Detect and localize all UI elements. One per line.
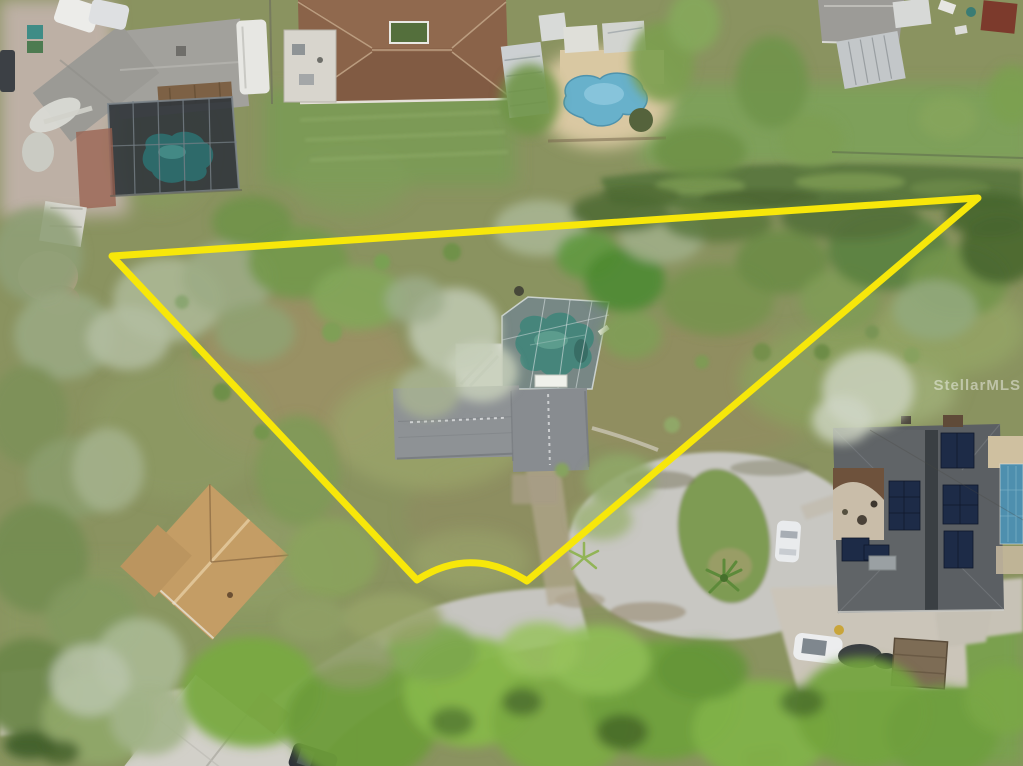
rv-trailer — [236, 19, 270, 94]
roof-right-wing — [511, 388, 589, 472]
teal-object — [966, 7, 976, 17]
skylight — [869, 556, 896, 570]
side-courtyard — [284, 30, 336, 102]
atrium-courtyard — [390, 22, 428, 43]
house-east-solar — [833, 415, 1023, 613]
chimney — [943, 415, 963, 427]
ac-unit — [299, 74, 314, 85]
ac-unit — [292, 44, 305, 55]
small-shed — [893, 0, 932, 28]
watermark: StellarMLS — [933, 377, 1021, 394]
entry-courtyard — [833, 468, 884, 540]
pool-enclosure-northwest — [108, 97, 239, 196]
pool-enclosure-subject — [502, 297, 610, 389]
trash-bins — [27, 25, 43, 53]
white-pad — [535, 375, 567, 387]
brick-patio — [76, 128, 116, 209]
aerial-photo: StellarMLS — [0, 0, 1023, 766]
chimney — [176, 46, 186, 56]
bush — [629, 108, 653, 132]
maroon-structure — [981, 0, 1018, 33]
fire-pit — [514, 286, 524, 296]
white-car-culdesac — [775, 520, 802, 563]
yellow-machine — [834, 625, 844, 635]
